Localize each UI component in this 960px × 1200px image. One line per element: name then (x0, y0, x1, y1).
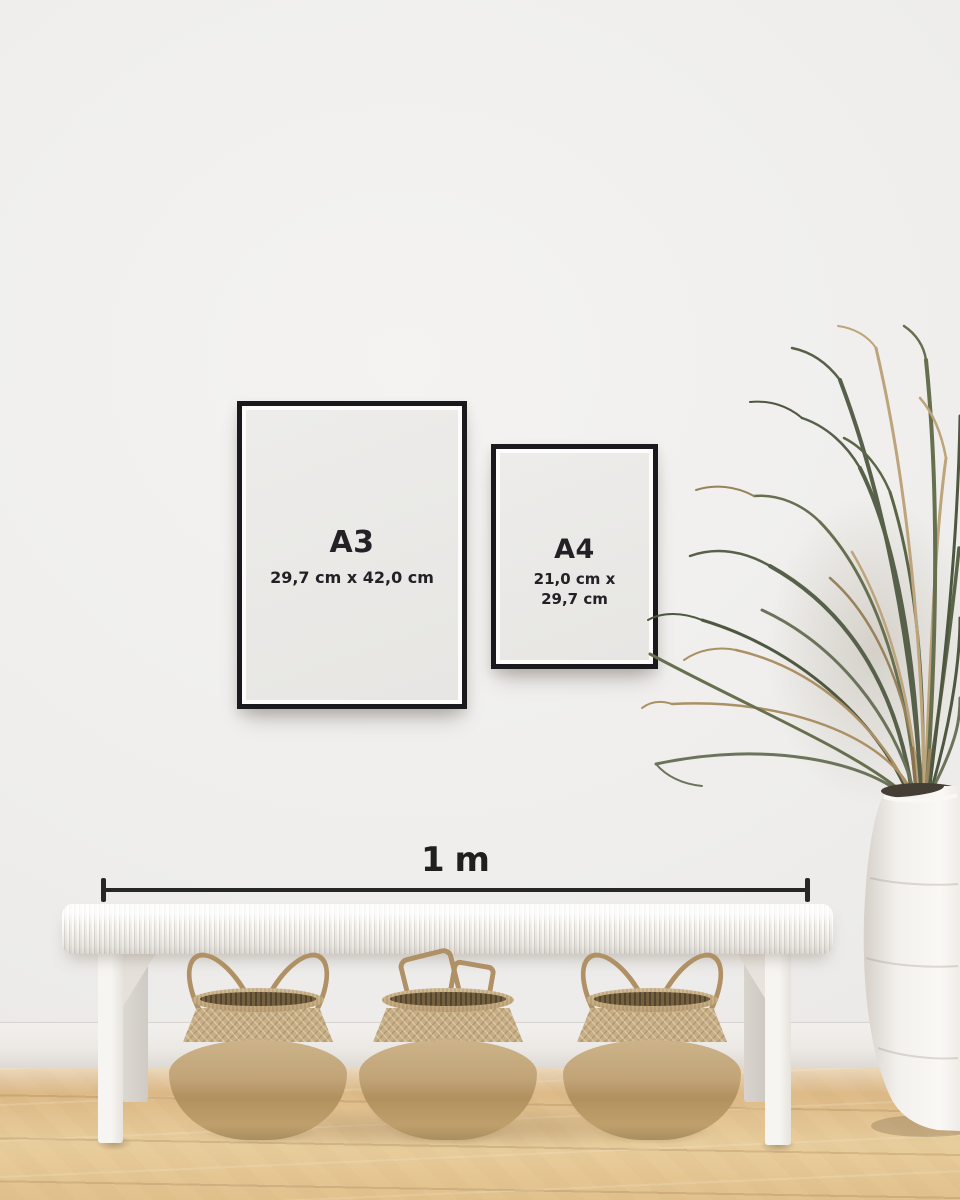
seagrass-basket-1 (169, 988, 347, 1140)
basket-body (359, 1040, 537, 1140)
white-vase (864, 786, 960, 1131)
basket-neck (373, 1008, 523, 1042)
basket-rim (192, 988, 324, 1012)
palm-fronds (642, 326, 960, 796)
basket-body (169, 1040, 347, 1140)
basket-neck (183, 1008, 333, 1042)
room-scene: A3 29,7 cm x 42,0 cm A4 21,0 cm x 29,7 c… (0, 0, 960, 1200)
bench-leg-front-left (98, 950, 123, 1143)
dried-palm-plant (640, 318, 960, 1148)
basket-opening (200, 992, 316, 1006)
basket-opening (390, 992, 506, 1006)
seagrass-basket-2 (359, 988, 537, 1140)
basket-rim (382, 988, 514, 1012)
